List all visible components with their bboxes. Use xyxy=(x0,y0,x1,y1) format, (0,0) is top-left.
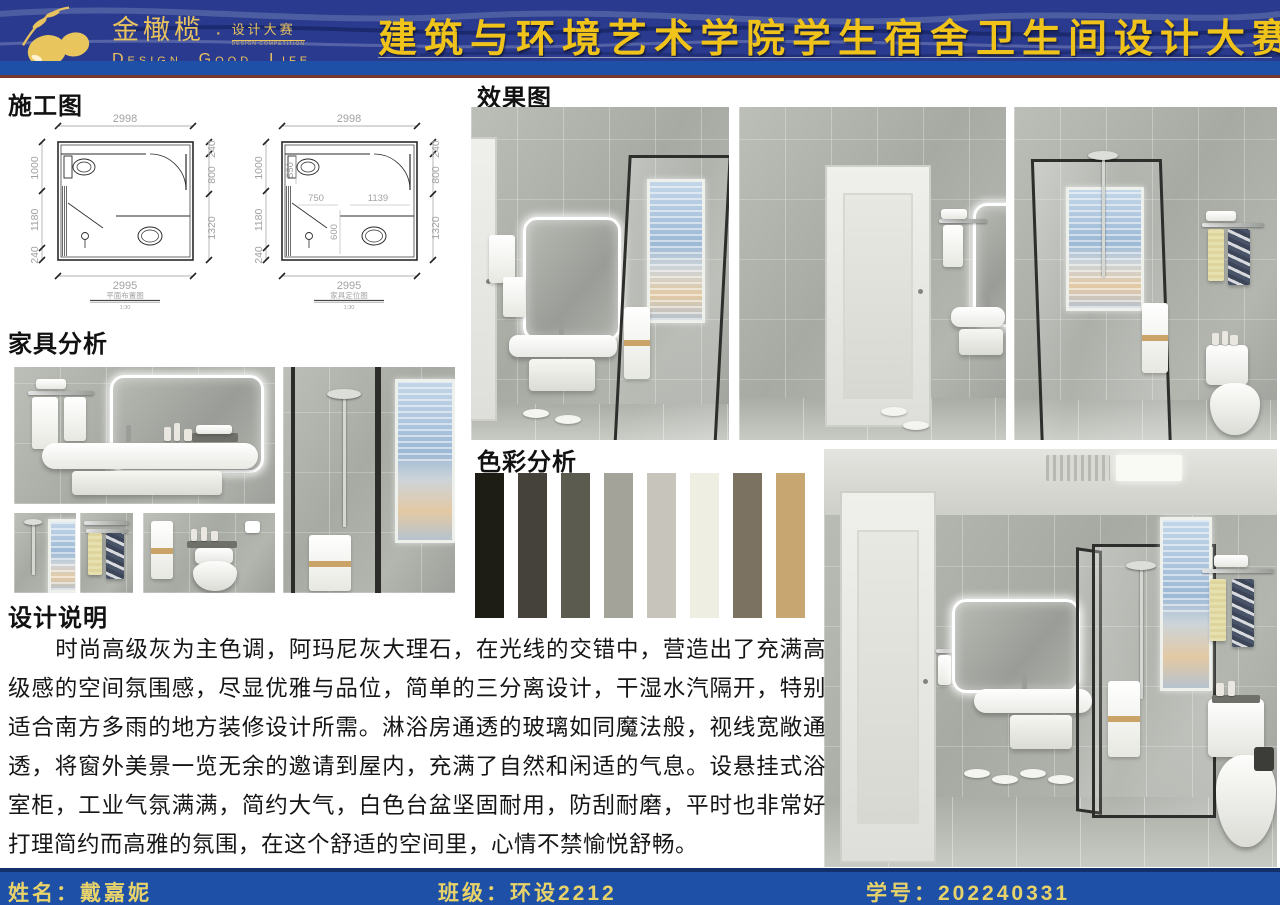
plan-scale: 1:30 xyxy=(120,305,131,310)
towel xyxy=(1214,555,1248,567)
render-photo-main xyxy=(824,449,1277,867)
header-banner: 金橄榄 · 设计大赛 DESIGN COMPETITION Design. Go… xyxy=(0,0,1280,78)
dim-left-1: 1000 xyxy=(253,156,265,180)
brand-subtitle-en: DESIGN COMPETITION xyxy=(232,41,305,47)
shower-column xyxy=(1140,569,1143,699)
dim-left-2: 1180 xyxy=(253,209,265,232)
poster-title: 建筑与环境艺术学院学生宿舍卫生间设计大赛 xyxy=(378,8,1250,54)
vanity-cabinet xyxy=(1010,715,1072,749)
shower-glass-frame xyxy=(291,367,295,593)
faucet xyxy=(985,291,990,307)
slipper xyxy=(1048,775,1074,784)
dim-top: 2998 xyxy=(113,113,137,125)
door-panel xyxy=(843,193,912,399)
color-swatch-7 xyxy=(733,473,762,618)
slipper xyxy=(964,769,990,778)
shower-head-icon xyxy=(1088,151,1118,160)
towel xyxy=(938,655,951,685)
toiletry-bottle xyxy=(201,527,207,541)
toiletry-bottle xyxy=(211,531,218,541)
towel xyxy=(36,379,66,389)
towel-with-ribbon xyxy=(151,521,173,579)
yellow-towel xyxy=(1208,229,1224,281)
footer-id: 学号：202240331 xyxy=(866,877,1070,905)
towel xyxy=(943,225,963,267)
vanity-counter xyxy=(974,689,1092,713)
dim-left-2: 1180 xyxy=(29,209,41,232)
shower-column xyxy=(32,525,35,575)
window xyxy=(647,179,705,323)
footer-class-label: 班级： xyxy=(438,882,510,905)
floor-plan-layout: 2998 2995 1000 1180 240 240 800 1320 xyxy=(28,108,233,310)
floor-plan-furniture: 2998 2995 1000 1180 240 240 800 1320 xyxy=(252,108,457,310)
shower-glass-frame xyxy=(375,367,381,593)
toiletry-bottle xyxy=(174,423,180,441)
dim-right-3: 1320 xyxy=(206,216,218,240)
dim-right-1: 240 xyxy=(206,140,218,158)
footer-class: 班级：环设2212 xyxy=(438,877,617,905)
towel xyxy=(1206,211,1236,221)
vanity-counter xyxy=(42,443,258,469)
toiletry-bottle xyxy=(164,427,171,441)
vanity-counter xyxy=(951,307,1005,327)
towel-bar xyxy=(84,521,129,525)
dim-inner-550: 550 xyxy=(285,162,296,178)
color-heading: 色彩分析 xyxy=(477,442,577,477)
brand-name: 金橄榄 xyxy=(112,8,205,47)
slipper xyxy=(523,409,549,418)
footer-name-label: 姓名： xyxy=(8,882,80,905)
patterned-towel xyxy=(1232,579,1254,647)
header-accent-line xyxy=(0,75,1280,78)
towel-bar xyxy=(1202,223,1264,227)
window xyxy=(395,379,455,543)
shower-column xyxy=(343,397,346,527)
furniture-photo-vanity xyxy=(14,367,275,504)
door-knob xyxy=(923,679,928,684)
patterned-towel xyxy=(1228,229,1250,285)
mirror xyxy=(952,599,1080,693)
towel-with-ribbon xyxy=(624,307,650,379)
slipper xyxy=(992,775,1018,784)
furniture-photo-shower xyxy=(283,367,455,593)
mirror xyxy=(523,217,621,341)
title-underline xyxy=(378,57,1272,58)
dim-right-2: 800 xyxy=(206,166,218,184)
render-photo-1 xyxy=(471,107,729,440)
window-blind xyxy=(398,382,452,461)
window-blind xyxy=(650,182,702,320)
toiletry-bottle xyxy=(1230,335,1238,345)
slipper xyxy=(1020,769,1046,778)
poster: 金橄榄 · 设计大赛 DESIGN COMPETITION Design. Go… xyxy=(0,0,1280,905)
toilet-paper-roll xyxy=(245,521,260,533)
plan-caption: 家具定位图 xyxy=(330,290,368,300)
towel-bar xyxy=(1202,569,1274,573)
color-swatch-5 xyxy=(647,473,676,618)
color-swatch-4 xyxy=(604,473,633,618)
ceiling-light xyxy=(1116,455,1182,481)
towel-bar xyxy=(939,219,987,223)
tank-tray xyxy=(1212,695,1260,703)
footer-name-value: 戴嘉妮 xyxy=(80,882,152,905)
towel xyxy=(941,209,967,219)
vanity-cabinet xyxy=(959,329,1003,355)
furniture-photo-shower-small xyxy=(14,513,76,593)
toilet-tank xyxy=(1206,345,1248,385)
shower-head-icon xyxy=(24,519,42,525)
dim-top: 2998 xyxy=(337,113,361,125)
yellow-towel xyxy=(1210,579,1226,641)
toiletry-bottle xyxy=(1222,331,1228,345)
toiletry-bottle xyxy=(1212,333,1219,345)
door-knob xyxy=(918,289,923,294)
render-photo-2 xyxy=(739,107,1006,440)
faucet xyxy=(559,319,564,335)
dim-right-3: 1320 xyxy=(430,216,442,240)
dim-inner-600: 600 xyxy=(329,224,340,240)
footer-id-label: 学号： xyxy=(866,882,938,905)
furniture-heading: 家具分析 xyxy=(8,324,108,359)
window-blind xyxy=(1163,520,1209,612)
towel xyxy=(64,397,86,441)
dim-inner-1139: 1139 xyxy=(368,193,388,204)
door-panel xyxy=(857,530,920,824)
plan-scale: 1:30 xyxy=(344,305,355,310)
toiletry-bottle xyxy=(1216,683,1224,696)
design-description-text: 时尚高级灰为主色调，阿玛尼灰大理石，在光线的交错中，营造出了充满高级感的空间氛围… xyxy=(8,630,826,864)
footer-id-value: 202240331 xyxy=(938,882,1070,905)
slipper xyxy=(881,407,907,416)
header-blue-band xyxy=(0,61,1280,75)
toiletry-bottle xyxy=(191,529,197,541)
color-swatch-row xyxy=(475,473,805,618)
vanity-cabinet xyxy=(72,471,222,495)
dim-left-3: 240 xyxy=(253,246,265,264)
folded-towel xyxy=(196,425,232,434)
vanity-counter xyxy=(509,335,617,357)
dim-left-3: 240 xyxy=(29,246,41,264)
slipper xyxy=(903,421,929,430)
bathroom-door xyxy=(825,165,931,427)
description-heading: 设计说明 xyxy=(8,598,108,633)
furniture-photo-towels xyxy=(80,513,133,593)
patterned-towel xyxy=(106,533,124,579)
brand-subtitle: 设计大赛 xyxy=(232,19,305,41)
plan-caption: 平面布置图 xyxy=(106,290,144,300)
vanity-cabinet xyxy=(529,359,595,391)
shelf xyxy=(187,541,237,548)
towel xyxy=(32,397,58,449)
render-photo-3 xyxy=(1014,107,1277,440)
yellow-towel xyxy=(88,533,102,575)
towel xyxy=(503,277,525,317)
toiletry-bottle xyxy=(1228,681,1235,696)
ceiling-vent xyxy=(1046,455,1110,481)
shower-head-icon xyxy=(1126,561,1156,570)
shower-head-icon xyxy=(327,389,361,399)
towel-bar xyxy=(28,391,94,395)
dim-left-1: 1000 xyxy=(29,156,41,180)
shower-column xyxy=(1102,157,1105,277)
color-swatch-3 xyxy=(561,473,590,618)
towel-tray xyxy=(192,433,238,442)
bathroom-door xyxy=(840,491,936,863)
towel xyxy=(489,235,515,283)
color-swatch-2 xyxy=(518,473,547,618)
footer-bar: 姓名：戴嘉妮 班级：环设2212 学号：202240331 xyxy=(0,868,1280,905)
window xyxy=(48,519,76,593)
window-blind xyxy=(1069,190,1141,308)
slipper xyxy=(555,415,581,424)
color-swatch-6 xyxy=(690,473,719,618)
color-swatch-8 xyxy=(776,473,805,618)
towel-with-ribbon xyxy=(309,535,351,591)
footer-name: 姓名：戴嘉妮 xyxy=(8,877,152,905)
brand-block: 金橄榄 · 设计大赛 DESIGN COMPETITION Design. Go… xyxy=(112,8,311,69)
window-blind xyxy=(51,522,75,590)
color-swatch-1 xyxy=(475,473,504,618)
dim-right-1: 240 xyxy=(430,140,442,158)
furniture-photo-toilet xyxy=(143,513,275,593)
window xyxy=(1160,517,1212,691)
towel-with-ribbon xyxy=(1142,303,1168,373)
brand-dot: · xyxy=(215,20,222,47)
footer-class-value: 环设2212 xyxy=(510,882,617,905)
towel-with-ribbon xyxy=(1108,681,1140,757)
dim-right-2: 800 xyxy=(430,166,442,184)
toiletry-bottle xyxy=(184,429,192,441)
window xyxy=(1066,187,1144,311)
faucet xyxy=(126,425,131,442)
dim-inner-750: 750 xyxy=(308,193,324,204)
paper-holder xyxy=(1254,747,1274,771)
